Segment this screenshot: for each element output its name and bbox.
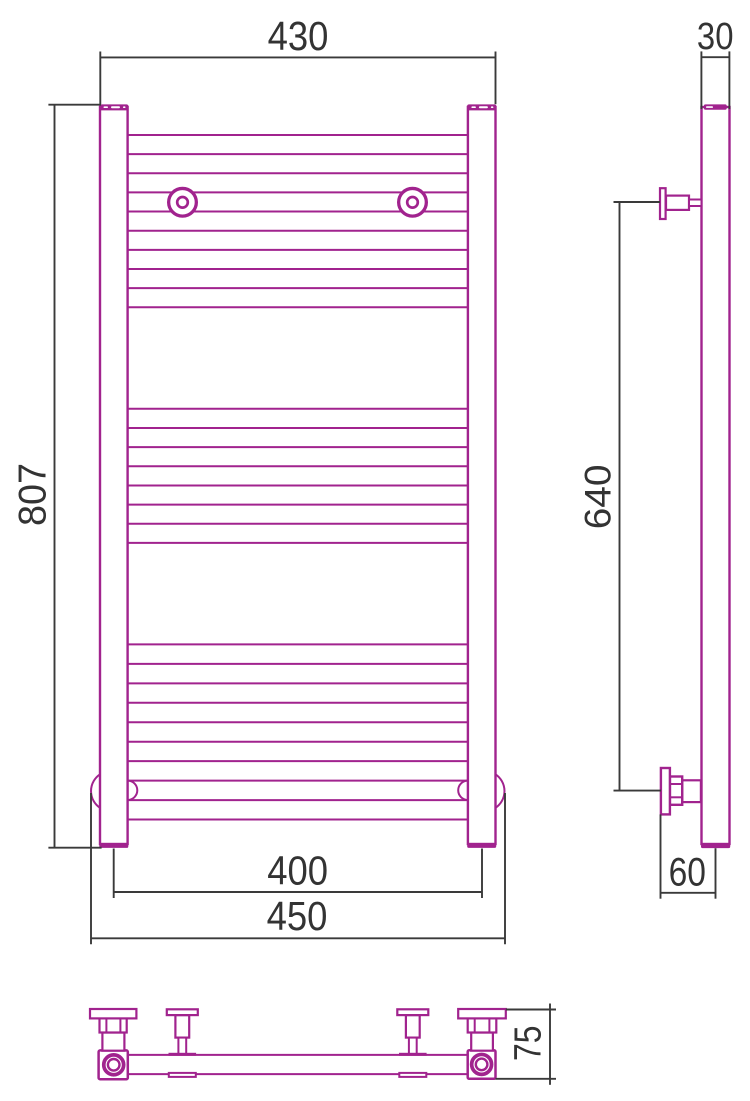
svg-text:75: 75 [507, 1026, 549, 1062]
svg-text:400: 400 [267, 849, 328, 894]
svg-text:640: 640 [579, 464, 620, 529]
svg-text:60: 60 [669, 850, 706, 894]
svg-text:30: 30 [697, 15, 734, 58]
svg-text:450: 450 [267, 894, 328, 939]
svg-text:430: 430 [268, 14, 329, 59]
svg-text:807: 807 [11, 463, 55, 526]
